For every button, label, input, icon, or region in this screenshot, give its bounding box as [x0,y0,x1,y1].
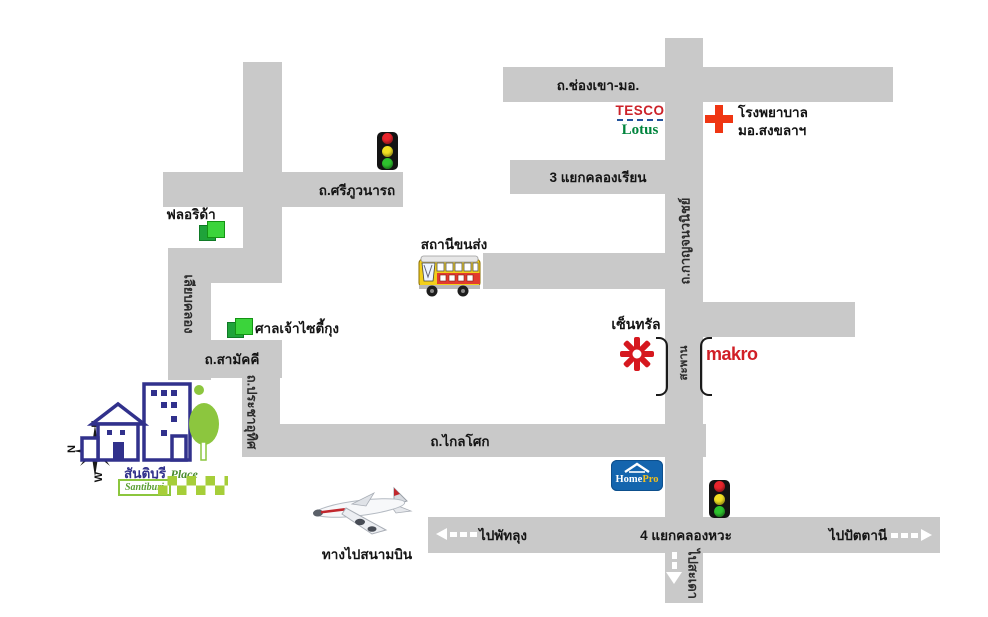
central-star-icon [619,336,655,372]
traffic-green-light [382,158,393,169]
traffic-red-light [382,133,393,144]
label-hospital: โรงพยาบาล มอ.สงขลาฯ [738,104,808,140]
tesco-wordmark: TESCO [615,104,665,118]
bridge-bracket-icon [656,337,668,396]
arrow-dash [672,562,677,569]
arrow-down-icon [666,552,682,584]
arrow-head [666,572,682,584]
traffic-green-light [714,506,725,517]
label-klong-rian: 3 แยกคลองเรียน [549,166,646,188]
makro-wordmark: makro [706,344,758,365]
traffic-light-icon [709,480,730,518]
label-kanjanavanich: ถ.กาญจนวนิชย์ [675,198,696,285]
traffic-red-light [714,481,725,492]
bus-icon [416,251,486,298]
arrow-head [921,529,932,541]
label-hospital-line2: มอ.สงขลาฯ [738,122,808,140]
arrow-dash [672,552,677,559]
arrow-dash [450,532,457,537]
homepro-wordmark: HomePro [616,475,659,486]
lotus-wordmark: Lotus [615,123,665,138]
homepro-pro-text: Pro [642,474,658,485]
green-squares-icon [199,221,227,244]
label-phatthalung: ไปพัทลุง [479,524,527,546]
arrow-head [436,528,447,540]
label-sri-phuwanart: ถ.ศรีภูวนารถ [319,179,395,201]
tesco-dashes-icon [617,119,663,121]
traffic-yellow-light [714,494,725,505]
traffic-light-icon [377,132,398,170]
arrow-dash [460,532,467,537]
arrow-right-icon [891,529,932,541]
label-airport: ทางไปสนามบิน [322,543,412,565]
label-sadao: ไปสะเดา [683,549,704,599]
road-makro [703,302,855,337]
traffic-yellow-light [382,146,393,157]
homepro-logo: HomePro [611,460,663,491]
airplane-icon [308,484,420,546]
arrow-left-icon [436,528,477,540]
label-hospital-line1: โรงพยาบาล [738,104,808,122]
label-samakkee: ถ.สามัคคี [205,348,260,370]
road-bus-station [483,253,667,289]
homepro-home-text: Home [616,474,643,485]
label-liab-klong: เลียบคลอง [179,274,200,333]
compass-letter-w: W [93,472,105,482]
tesco-lotus-logo: TESCO Lotus [615,104,665,138]
label-klai-sok: ถ.ไกลโศก [430,430,489,452]
brand-checker-pattern [158,476,228,495]
label-saphan: สะพาน [675,345,693,380]
label-central: เซ็นทรัล [611,314,660,336]
arrow-dash [911,533,918,538]
hospital-cross-icon [705,105,733,133]
label-pracha-uthit: ถ.ประชาอุทิศ [242,375,263,449]
compass-letter-n: N [66,445,78,453]
label-pattani: ไปปัตตานี [829,524,887,546]
arrow-dash [470,532,477,537]
green-squares-icon [227,318,255,341]
homepro-roof-icon [619,462,655,474]
label-shrine: ศาลเจ้าไซตี้กุง [255,317,339,339]
green-square-front [207,221,225,238]
label-klong-wa: 4 แยกคลองหวะ [640,524,732,546]
santiburi-buildings-logo [80,378,230,464]
green-square-front [235,318,253,335]
arrow-dash [901,533,908,538]
map-canvas: ถ.ช่องเขา-มอ. 3 แยกคลองเรียน ถ.ศรีภูวนาร… [0,0,988,617]
arrow-dash [891,533,898,538]
bridge-bracket-icon [700,337,712,396]
label-chong-khao-mo: ถ.ช่องเขา-มอ. [557,74,639,96]
